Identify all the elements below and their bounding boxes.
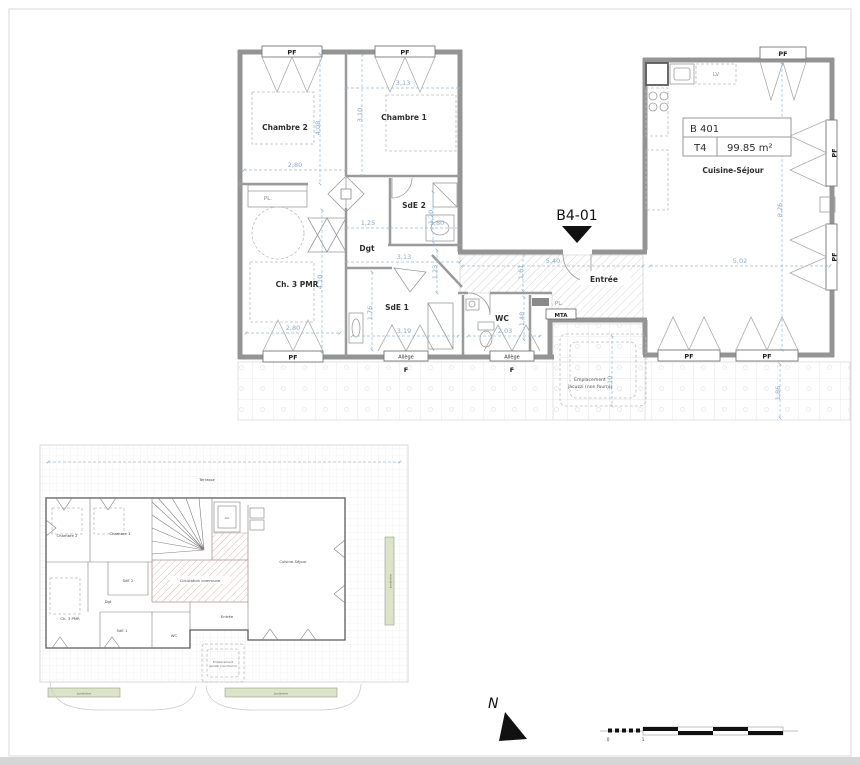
ov-jacuzzi-line2: jacuzzi (non fourni) — [208, 664, 237, 668]
pf-label-cuisine-top: PF — [778, 50, 787, 58]
ov-label-entree: Entrée — [221, 614, 234, 619]
lv-label: LV — [713, 72, 719, 78]
dim-h-ch1: 3,10 — [356, 108, 364, 122]
pf-label-pmr: PF — [288, 354, 297, 362]
terrasse-label: Terrasse — [198, 477, 215, 482]
f-label-wc: F — [510, 366, 514, 374]
pf-label-cuisine-bottom-2: PF — [762, 353, 771, 361]
unit-type: T4 — [693, 143, 706, 154]
jardiniere-label-bottom-right: Jardinière — [273, 692, 288, 696]
top-plan: PF PF PF Allège F Allège F PF PF P — [238, 46, 850, 420]
jardiniere-label-right: Jardinière — [389, 574, 393, 589]
jardiniere-label-bottom-left: Jardinière — [76, 692, 91, 696]
dim-h-dgt: 1,23 — [431, 265, 439, 279]
unit-info-box: B 401 T4 99.85 m² — [683, 118, 791, 156]
dim-h-wc: 1,48 — [518, 312, 526, 326]
scale-bar: 0 1 — [600, 727, 798, 743]
scale-zero-label: 0 — [607, 737, 610, 743]
terrace-grid — [238, 324, 850, 420]
unit-code: B 401 — [690, 124, 719, 135]
overview-plan: Terrasse Asc Circulation commune — [40, 445, 408, 710]
room-label-cuisine: Cuisine-Séjour — [702, 166, 764, 175]
dim-h-sde1: 1,76 — [366, 306, 374, 320]
dim-w-ch2: 2,80 — [288, 161, 302, 169]
room-label-entree: Entrée — [590, 275, 618, 284]
ov-label-ch3pmr: Ch. 3 PMR — [60, 616, 80, 621]
pf-label-right-1: PF — [831, 148, 839, 157]
pf-label-right-2: PF — [831, 252, 839, 261]
floorplan-page: PF PF PF Allège F Allège F PF PF P — [0, 0, 860, 765]
jacuzzi-label-line1: Emplacement — [574, 377, 606, 383]
dim-w-ch1: 3,13 — [396, 79, 410, 87]
unit-marker: B4-01 — [556, 208, 597, 243]
allege-label-wc: Allège — [504, 354, 520, 361]
f-label-sde1: F — [404, 366, 408, 374]
dim-h-cuisine: 8,26 — [776, 203, 784, 217]
room-label-dgt: Dgt — [359, 244, 375, 253]
dim-w-dgt2: 3,13 — [397, 253, 411, 261]
ov-label-sde2: SdE 2 — [123, 578, 134, 583]
ov-label-wc: WC — [171, 633, 178, 638]
dim-w-wc: 2,03 — [498, 327, 512, 335]
dim-w-cuisine: 5,02 — [733, 257, 747, 265]
dim-h-ch2: 4,08 — [314, 121, 322, 135]
fixtures: PL. PL. MTA — [248, 63, 736, 349]
placard-label-chambre2: PL. — [264, 196, 272, 202]
ov-label-cuisine: Cuisine-Séjour — [279, 559, 307, 564]
ov-label-chambre1: Chambre 1 — [110, 531, 132, 536]
room-label-chambre1: Chambre 1 — [381, 113, 427, 122]
floorplan-drawing: PF PF PF Allège F Allège F PF PF P — [0, 0, 860, 765]
circulation-label: Circulation commune — [180, 578, 221, 583]
ov-label-sde1: SdE 1 — [117, 628, 128, 633]
dim-w-pmr: 2,80 — [286, 324, 300, 332]
pf-label-cuisine-bottom-1: PF — [684, 353, 693, 361]
room-label-chambre2: Chambre 2 — [262, 123, 308, 132]
room-label-sde2: SdE 2 — [402, 201, 426, 210]
north-arrow: N — [488, 696, 527, 741]
dim-h-entree: 1,61 — [517, 265, 525, 279]
unit-area: 99.85 m² — [727, 143, 773, 154]
scale-bar-dots — [608, 729, 640, 733]
ov-label-chambre2: Chambre 2 — [57, 533, 79, 538]
dim-h-jacuzzi: 3,10 — [606, 376, 614, 390]
room-label-ch3pmr: Ch. 3 PMR — [276, 280, 319, 289]
dim-h-balcon: 1,86 — [774, 386, 782, 400]
pf-label-chambre1: PF — [400, 49, 409, 57]
exterior-walls — [238, 50, 834, 359]
ov-label-dgt: Dgt — [105, 599, 112, 604]
room-label-wc: WC — [495, 314, 509, 323]
dim-w-entree: 5,40 — [546, 257, 560, 265]
north-label: N — [488, 696, 499, 712]
mta-label: MTA — [554, 313, 568, 319]
dim-w-dgt: 1,25 — [361, 219, 375, 227]
north-arrow-icon — [499, 712, 527, 741]
placard-label-entree: PL. — [555, 301, 563, 307]
dim-h-sde2: 1,20 — [427, 210, 435, 224]
allege-label-sde1: Allège — [398, 354, 414, 361]
pf-label-chambre2: PF — [287, 49, 296, 57]
room-label-sde1: SdE 1 — [385, 303, 409, 312]
scale-one-label: 1 — [642, 737, 645, 743]
asc-label: Asc — [224, 516, 229, 520]
unit-marker-label: B4-01 — [556, 208, 597, 224]
unit-marker-arrow-icon — [562, 226, 592, 243]
dim-w-sde1: 3,19 — [397, 327, 411, 335]
